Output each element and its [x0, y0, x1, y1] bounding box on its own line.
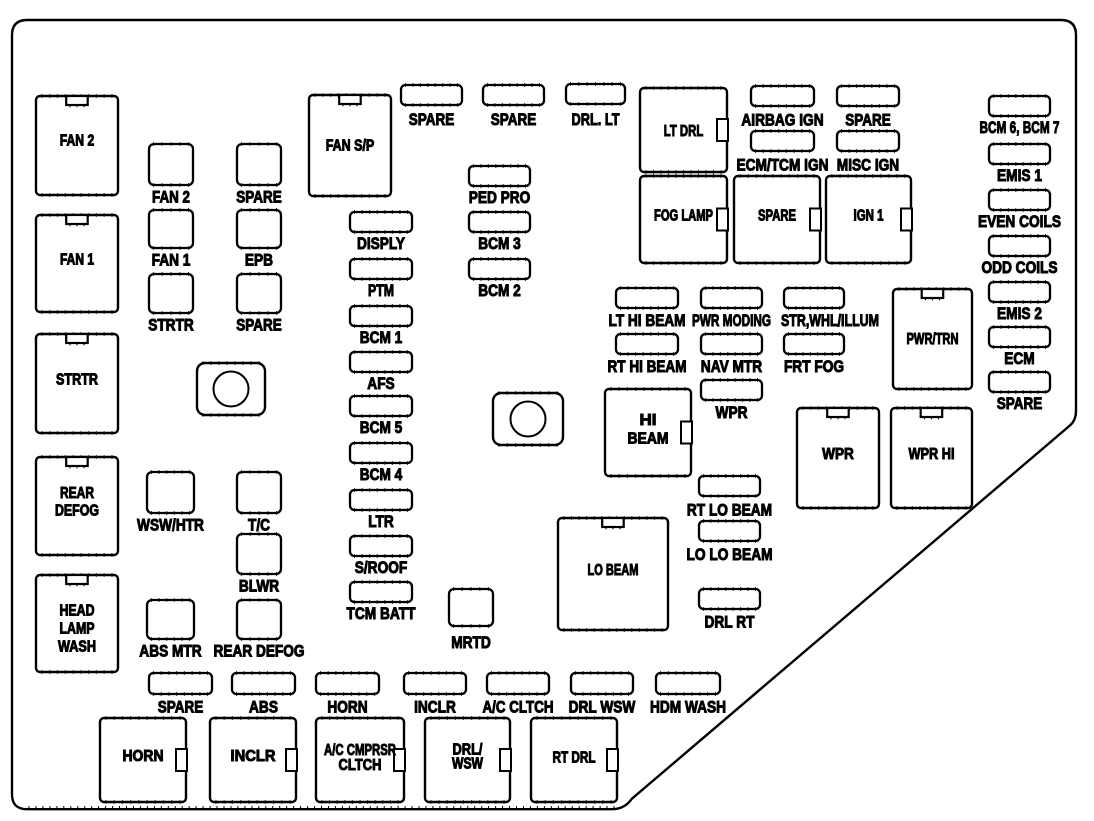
svg-text:CLTCH: CLTCH: [339, 757, 382, 774]
svg-text:LT DRL: LT DRL: [664, 123, 704, 140]
svg-text:EPB: EPB: [245, 252, 273, 270]
svg-text:HORN: HORN: [327, 699, 367, 717]
svg-text:PWR MODING: PWR MODING: [692, 312, 771, 330]
svg-text:PTM: PTM: [368, 282, 394, 300]
svg-text:LTR: LTR: [368, 513, 394, 531]
svg-text:FAN S/P: FAN S/P: [326, 138, 375, 155]
svg-text:INCLR: INCLR: [231, 748, 276, 765]
svg-text:AIRBAG IGN: AIRBAG IGN: [741, 112, 823, 130]
svg-text:BEAM: BEAM: [628, 431, 669, 448]
svg-text:INCLR: INCLR: [414, 699, 456, 717]
svg-text:REAR: REAR: [60, 485, 94, 502]
svg-text:RT LO BEAM: RT LO BEAM: [687, 502, 772, 520]
svg-text:WSW: WSW: [452, 756, 483, 773]
svg-text:PWR/TRN: PWR/TRN: [907, 331, 959, 348]
svg-text:BCM 6, BCM 7: BCM 6, BCM 7: [980, 119, 1060, 137]
svg-text:BCM 3: BCM 3: [478, 235, 521, 253]
svg-text:IGN 1: IGN 1: [854, 208, 884, 225]
svg-text:SPARE: SPARE: [491, 111, 537, 129]
svg-text:ECM: ECM: [1004, 350, 1034, 368]
svg-text:BCM 2: BCM 2: [478, 282, 521, 300]
svg-text:WPR HI: WPR HI: [909, 446, 955, 463]
svg-text:A/C CLTCH: A/C CLTCH: [483, 699, 554, 717]
svg-text:BCM 5: BCM 5: [360, 419, 403, 437]
svg-text:AFS: AFS: [367, 375, 394, 393]
svg-text:S/ROOF: S/ROOF: [355, 559, 408, 577]
svg-text:HI: HI: [640, 412, 657, 429]
svg-text:EMIS 1: EMIS 1: [997, 167, 1042, 185]
svg-text:LT HI BEAM: LT HI BEAM: [609, 312, 686, 330]
svg-text:FAN 1: FAN 1: [152, 252, 191, 270]
svg-text:FAN 2: FAN 2: [60, 133, 94, 150]
svg-text:DISPLY: DISPLY: [357, 235, 405, 253]
svg-text:HDM WASH: HDM WASH: [650, 699, 726, 717]
svg-text:DRL. LT: DRL. LT: [572, 111, 620, 129]
svg-text:BCM 1: BCM 1: [360, 329, 403, 347]
svg-text:WASH: WASH: [58, 639, 96, 656]
svg-text:HEAD: HEAD: [60, 603, 95, 620]
svg-text:STRTR: STRTR: [56, 372, 98, 389]
svg-text:DRL RT: DRL RT: [705, 614, 755, 632]
svg-text:FAN 1: FAN 1: [60, 252, 94, 269]
svg-text:LAMP: LAMP: [60, 621, 95, 638]
svg-text:FAN 2: FAN 2: [152, 189, 190, 207]
svg-text:BLWR: BLWR: [239, 578, 279, 596]
svg-text:LO LO BEAM: LO LO BEAM: [687, 546, 773, 564]
svg-text:PED PRO: PED PRO: [469, 189, 531, 207]
svg-text:SPARE: SPARE: [758, 208, 796, 225]
svg-text:DRL WSW: DRL WSW: [569, 699, 636, 717]
svg-text:T/C: T/C: [248, 517, 270, 535]
svg-text:NAV MTR: NAV MTR: [701, 358, 762, 376]
svg-text:ABS MTR: ABS MTR: [139, 643, 201, 661]
svg-text:STR,WHL/ILLUM: STR,WHL/ILLUM: [781, 312, 879, 330]
svg-text:ODD COILS: ODD COILS: [981, 259, 1057, 277]
svg-text:MRTD: MRTD: [451, 634, 491, 652]
svg-text:EVEN COILS: EVEN COILS: [978, 213, 1061, 231]
svg-text:REAR DEFOG: REAR DEFOG: [214, 643, 305, 661]
svg-text:LO BEAM: LO BEAM: [588, 562, 639, 579]
svg-text:SPARE: SPARE: [997, 395, 1043, 413]
svg-text:SPARE: SPARE: [158, 699, 204, 717]
svg-text:WSW/HTR: WSW/HTR: [137, 517, 204, 535]
svg-text:TCM BATT: TCM BATT: [347, 605, 416, 623]
svg-text:DEFOG: DEFOG: [55, 503, 99, 520]
svg-text:MISC IGN: MISC IGN: [837, 157, 899, 175]
svg-text:SPARE: SPARE: [845, 112, 891, 130]
svg-text:BCM 4: BCM 4: [360, 466, 403, 484]
svg-text:SPARE: SPARE: [409, 111, 455, 129]
svg-text:RT DRL: RT DRL: [553, 750, 596, 767]
svg-text:STRTR: STRTR: [148, 317, 194, 335]
svg-text:ECM/TCM IGN: ECM/TCM IGN: [736, 157, 828, 175]
svg-text:SPARE: SPARE: [236, 189, 282, 207]
svg-text:HORN: HORN: [123, 748, 164, 765]
svg-text:FOG LAMP: FOG LAMP: [654, 208, 713, 225]
svg-text:FRT FOG: FRT FOG: [784, 358, 844, 376]
svg-text:RT HI BEAM: RT HI BEAM: [608, 358, 687, 376]
svg-text:ABS: ABS: [249, 699, 278, 717]
svg-text:EMIS 2: EMIS 2: [997, 305, 1042, 323]
svg-text:WPR: WPR: [716, 404, 748, 422]
svg-text:SPARE: SPARE: [236, 317, 282, 335]
svg-text:WPR: WPR: [822, 446, 854, 463]
